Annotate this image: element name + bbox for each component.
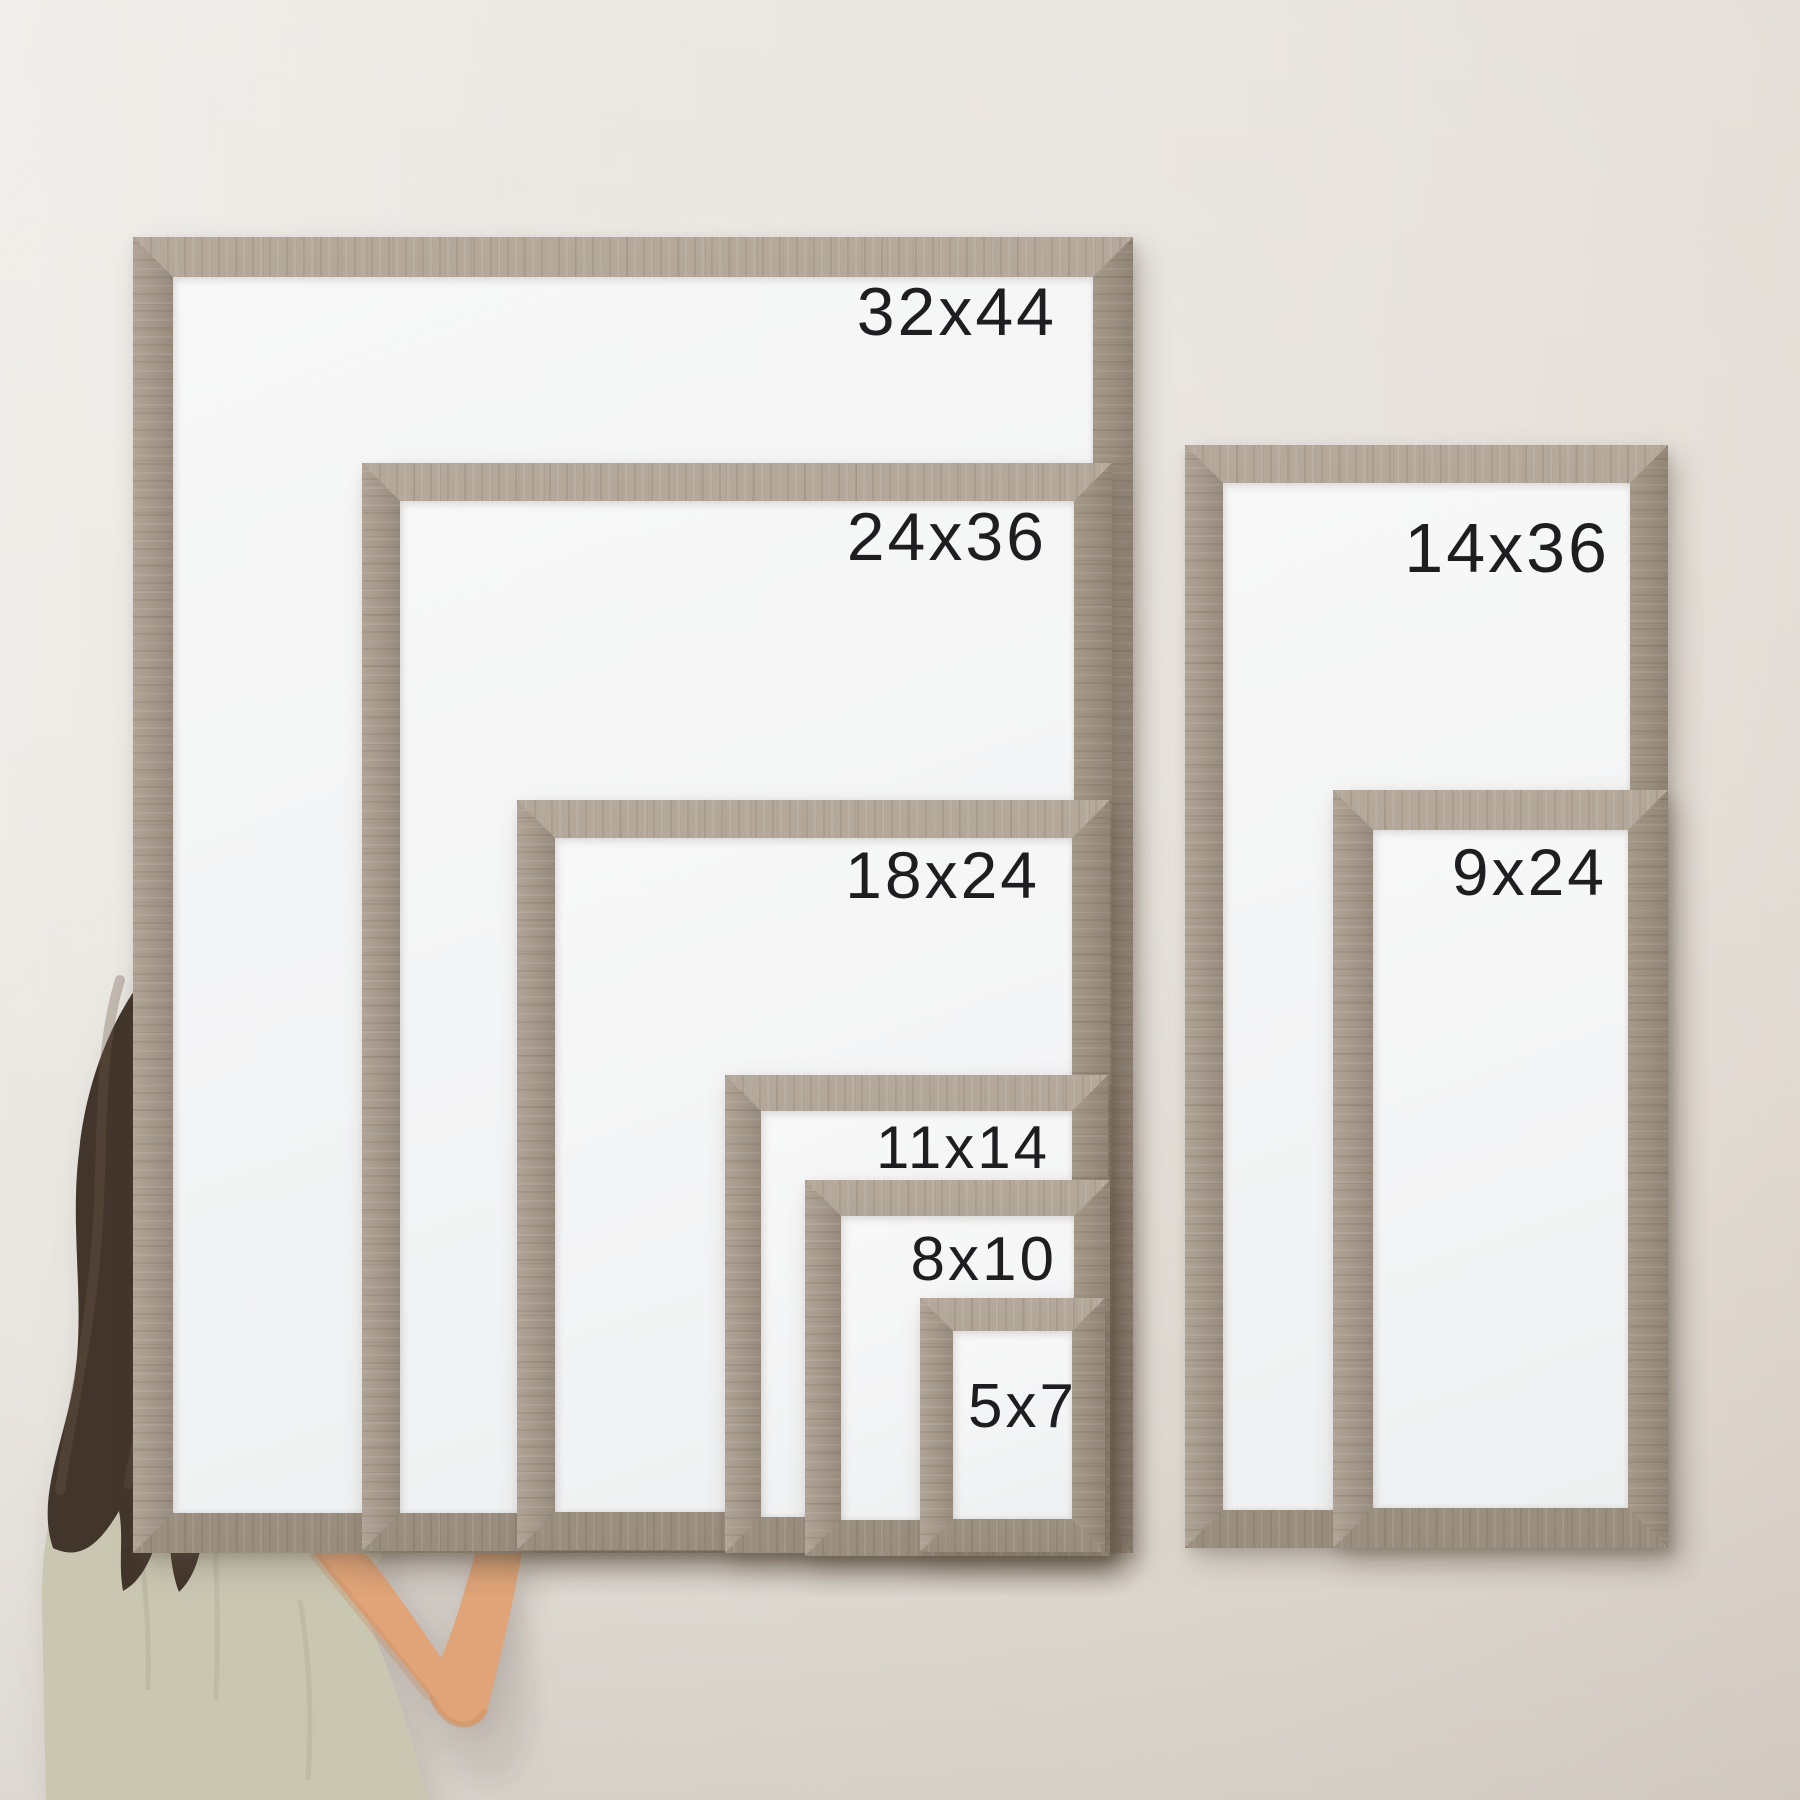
size-guide-photo: 32x4424x3618x2411x148x105x714x369x24	[0, 0, 1800, 1800]
frame-wood-left-rail	[920, 1298, 953, 1552]
frame-wood-left-rail	[133, 237, 173, 1553]
size-label: 8x10	[911, 1229, 1057, 1291]
frame-wood-right-rail	[1628, 790, 1668, 1548]
whiteboard-surface	[1373, 830, 1628, 1508]
frame-wood-left-rail	[1333, 790, 1373, 1548]
frames-group: 32x4424x3618x2411x148x105x714x369x24	[0, 0, 1800, 1800]
size-label: 18x24	[845, 842, 1040, 908]
frame-9x24: 9x24	[1333, 790, 1668, 1548]
size-label: 32x44	[857, 278, 1057, 346]
frame-5x7: 5x7	[920, 1298, 1105, 1552]
size-label: 5x7	[968, 1376, 1077, 1438]
frame-wood-left-rail	[725, 1075, 761, 1553]
frame-wood-left-rail	[1185, 445, 1223, 1548]
frame-wood-left-rail	[805, 1180, 841, 1556]
size-label: 9x24	[1452, 839, 1607, 905]
size-label: 24x36	[847, 503, 1047, 571]
size-label: 11x14	[876, 1118, 1050, 1178]
size-label: 14x36	[1404, 513, 1610, 583]
frame-wood-left-rail	[517, 800, 555, 1550]
frame-wood-left-rail	[362, 463, 400, 1551]
